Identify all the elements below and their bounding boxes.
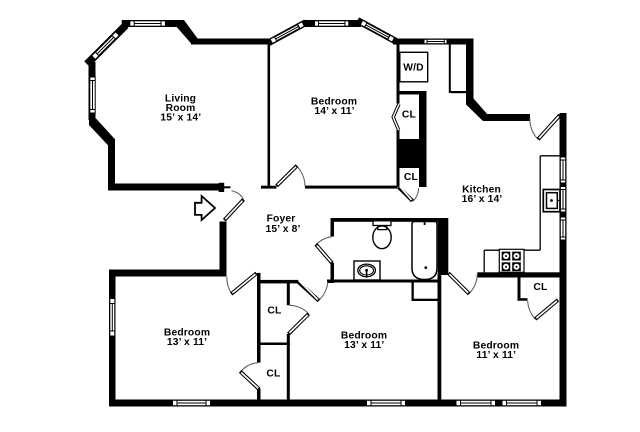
svg-text:13’ x 11’: 13’ x 11’ — [344, 340, 384, 351]
svg-text:15’ x 14’: 15’ x 14’ — [160, 113, 201, 124]
svg-text:16’ x 14’: 16’ x 14’ — [462, 194, 503, 205]
svg-text:CL: CL — [267, 305, 281, 316]
svg-text:CL: CL — [404, 172, 418, 183]
svg-text:CL: CL — [266, 369, 280, 380]
svg-text:W/D: W/D — [403, 62, 424, 73]
svg-text:13’ x 11’: 13’ x 11’ — [167, 337, 207, 348]
svg-text:11’ x 11’: 11’ x 11’ — [476, 350, 516, 361]
svg-text:15’ x 8’: 15’ x 8’ — [266, 224, 301, 235]
svg-text:Foyer: Foyer — [267, 214, 296, 225]
svg-text:CL: CL — [402, 109, 416, 120]
svg-text:CL: CL — [533, 282, 547, 293]
svg-text:14’ x 11’: 14’ x 11’ — [314, 106, 354, 117]
